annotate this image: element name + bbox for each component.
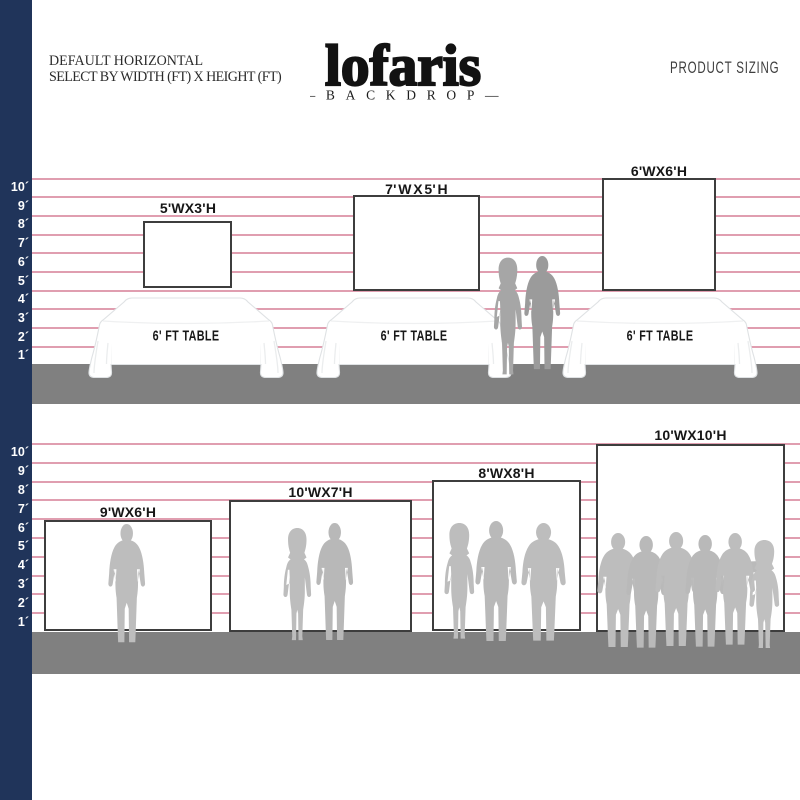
svg-text:6' FT TABLE: 6' FT TABLE [153,327,220,344]
svg-text:6' FT TABLE: 6' FT TABLE [627,327,694,344]
svg-text:6' FT TABLE: 6' FT TABLE [381,327,448,344]
svg-text:—BACKDROP—: —BACKDROP— [310,88,500,103]
